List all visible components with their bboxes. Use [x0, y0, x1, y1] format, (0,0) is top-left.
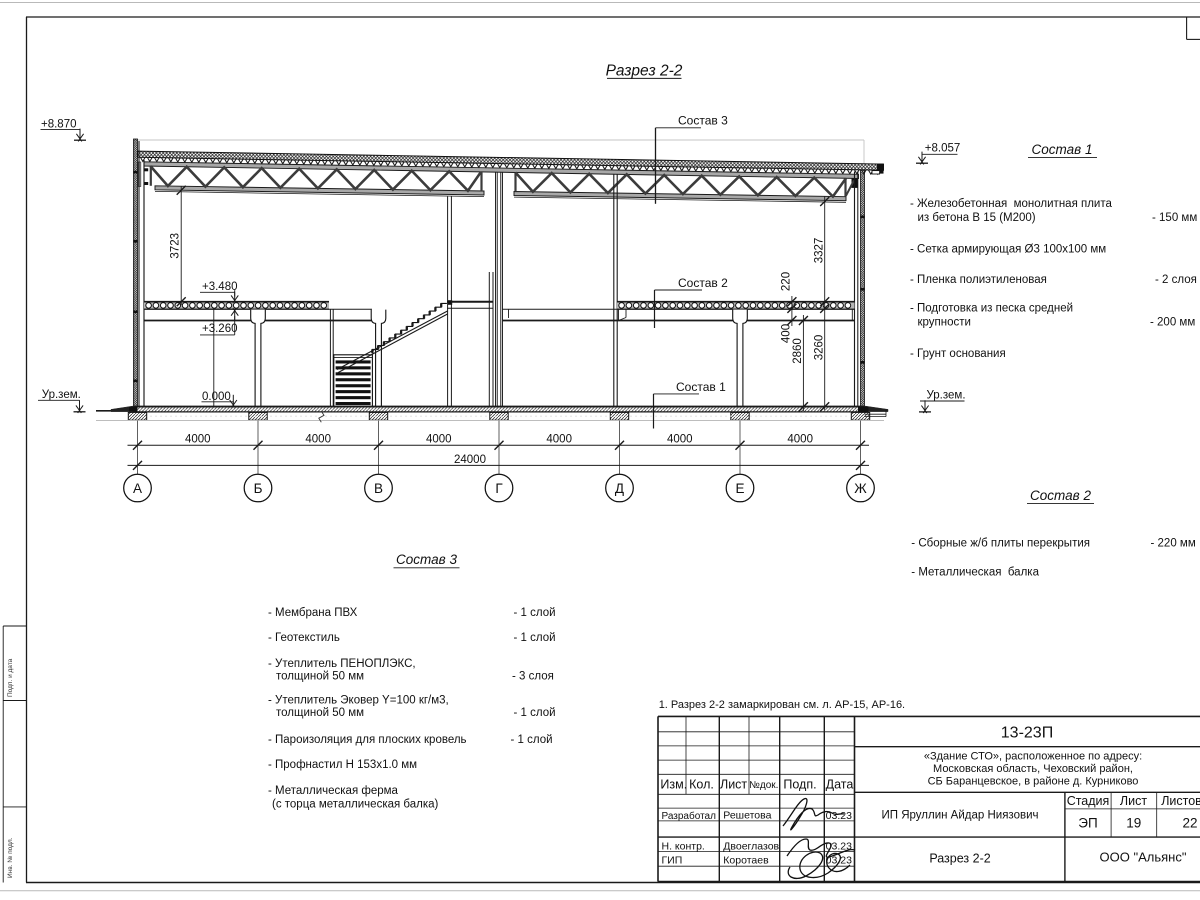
svg-text:- 3 слоя: - 3 слоя	[512, 671, 554, 683]
svg-text:ИП Яруллин Айдар Ниязович: ИП Яруллин Айдар Ниязович	[882, 810, 1039, 822]
svg-text:ЭП: ЭП	[1078, 816, 1097, 831]
svg-text:4000: 4000	[546, 434, 572, 446]
svg-text:- Подготовка из песка средней: - Подготовка из песка средней	[910, 303, 1073, 315]
svg-text:- Пароизоляция для плоских кро: - Пароизоляция для плоских кровель	[268, 734, 467, 746]
svg-text:- Железобетонная монолитная п: - Железобетонная монолитная плита	[910, 198, 1112, 210]
svg-text:0.000: 0.000	[202, 391, 231, 403]
svg-text:из бетона В 15 (М200): из бетона В 15 (М200)	[918, 212, 1036, 224]
svg-text:толщиной 50 мм: толщиной 50 мм	[276, 671, 364, 683]
svg-text:- Мембрана ПВХ: - Мембрана ПВХ	[268, 607, 358, 619]
svg-text:Подп. и дата: Подп. и дата	[7, 658, 14, 697]
svg-text:- Утеплитель Эковер Y=100 кг/м: - Утеплитель Эковер Y=100 кг/м3,	[268, 695, 449, 707]
svg-text:22: 22	[1182, 816, 1197, 831]
svg-text:+8.057: +8.057	[925, 143, 961, 155]
svg-text:толщиной 50 мм: толщиной 50 мм	[276, 707, 364, 719]
svg-text:3327: 3327	[813, 238, 825, 264]
svg-text:4000: 4000	[185, 434, 211, 446]
svg-text:Состав 3: Состав 3	[678, 114, 728, 128]
svg-text:ООО "Альянс": ООО "Альянс"	[1100, 850, 1187, 865]
svg-text:+8.870: +8.870	[41, 119, 77, 131]
svg-text:- Геотекстиль: - Геотекстиль	[268, 632, 340, 644]
svg-text:Подп.: Подп.	[783, 778, 816, 792]
svg-text:Московская область, Чеховский: Московская область, Чеховский район,	[933, 763, 1133, 775]
svg-text:19: 19	[1126, 816, 1141, 831]
svg-text:Ур.зем.: Ур.зем.	[927, 389, 966, 401]
svg-text:Состав 2: Состав 2	[678, 276, 728, 290]
svg-text:- Пленка полиэтиленовая: - Пленка полиэтиленовая	[910, 274, 1047, 286]
svg-text:ГИП: ГИП	[662, 854, 683, 866]
svg-text:Г: Г	[495, 481, 503, 496]
svg-text:Состав 1: Состав 1	[676, 380, 726, 394]
svg-text:Состав 3: Состав 3	[396, 552, 457, 567]
svg-text:+3.260: +3.260	[202, 323, 238, 335]
svg-text:Изм.: Изм.	[660, 778, 687, 792]
svg-text:№док.: №док.	[749, 780, 778, 791]
svg-text:3723: 3723	[170, 233, 182, 259]
svg-text:А: А	[133, 481, 142, 496]
svg-text:- 150 мм: - 150 мм	[1152, 212, 1197, 224]
svg-text:4000: 4000	[305, 434, 331, 446]
svg-text:- Профнастил Н 153х1.0 мм: - Профнастил Н 153х1.0 мм	[268, 759, 417, 771]
svg-text:- Сборные ж/б плиты перекрытия: - Сборные ж/б плиты перекрытия	[911, 538, 1090, 550]
svg-text:Листов: Листов	[1161, 794, 1200, 808]
svg-text:- 220 мм: - 220 мм	[1151, 538, 1196, 550]
svg-text:3260: 3260	[813, 335, 825, 361]
svg-text:«Здание СТО», расположенное по: «Здание СТО», расположенное по адресу:	[924, 751, 1142, 763]
svg-text:- 2 слоя: - 2 слоя	[1155, 274, 1197, 286]
svg-text:24000: 24000	[454, 454, 486, 466]
svg-text:Двоеглазов: Двоеглазов	[723, 840, 779, 852]
svg-text:- Грунт основания: - Грунт основания	[910, 348, 1006, 360]
svg-text:- 1 слой: - 1 слой	[511, 734, 553, 746]
svg-text:1. Разрез 2-2 замаркирован см.: 1. Разрез 2-2 замаркирован см. л. АР-15,…	[659, 699, 905, 711]
svg-text:Ур.зем.: Ур.зем.	[42, 389, 81, 401]
svg-text:Инв. № подл.: Инв. № подл.	[7, 837, 14, 878]
svg-text:СБ Баранцевское, в районе д. К: СБ Баранцевское, в районе д. Курниково	[928, 776, 1139, 788]
svg-text:Кол.: Кол.	[689, 778, 714, 792]
svg-text:Коротаев: Коротаев	[723, 854, 769, 866]
svg-text:2860: 2860	[792, 338, 804, 364]
svg-text:- 200 мм: - 200 мм	[1150, 317, 1195, 329]
svg-text:220: 220	[781, 272, 793, 291]
svg-text:- 1 слой: - 1 слой	[514, 632, 556, 644]
svg-text:(с торца металлическая балка): (с торца металлическая балка)	[272, 798, 439, 810]
svg-text:- 1 слой: - 1 слой	[514, 607, 556, 619]
svg-text:400: 400	[781, 324, 793, 343]
svg-text:В: В	[374, 481, 383, 496]
svg-text:Разработал: Разработал	[662, 810, 717, 822]
svg-text:Б: Б	[254, 481, 263, 496]
svg-text:Стадия: Стадия	[1067, 794, 1110, 808]
svg-text:Д: Д	[615, 481, 624, 496]
svg-text:Дата: Дата	[826, 778, 854, 792]
svg-text:Е: Е	[735, 481, 744, 496]
svg-text:Решетова: Решетова	[723, 810, 771, 822]
svg-text:крупности: крупности	[918, 317, 971, 329]
svg-text:4000: 4000	[787, 434, 813, 446]
svg-text:4000: 4000	[426, 434, 452, 446]
svg-text:Состав 1: Состав 1	[1032, 142, 1093, 157]
svg-text:- Утеплитель ПЕНОПЛЭКС,: - Утеплитель ПЕНОПЛЭКС,	[268, 658, 416, 670]
svg-text:Ж: Ж	[854, 481, 867, 496]
svg-text:Лист: Лист	[720, 778, 747, 792]
svg-text:Состав 2: Состав 2	[1030, 488, 1091, 503]
svg-text:13-23П: 13-23П	[1001, 725, 1053, 742]
svg-text:Лист: Лист	[1120, 794, 1147, 808]
svg-text:- Сетка армирующая Ø3 100х100: - Сетка армирующая Ø3 100х100 мм	[910, 244, 1106, 256]
svg-text:Н. контр.: Н. контр.	[662, 840, 705, 852]
svg-text:Разрез 2-2: Разрез 2-2	[929, 852, 990, 866]
svg-text:+3.480: +3.480	[202, 281, 238, 293]
svg-text:4000: 4000	[667, 434, 693, 446]
svg-text:- Металлическая балка: - Металлическая балка	[911, 567, 1039, 579]
svg-text:- Металлическая ферма: - Металлическая ферма	[268, 785, 399, 797]
svg-text:Разрез 2-2: Разрез 2-2	[606, 63, 683, 80]
svg-text:- 1 слой: - 1 слой	[514, 707, 556, 719]
